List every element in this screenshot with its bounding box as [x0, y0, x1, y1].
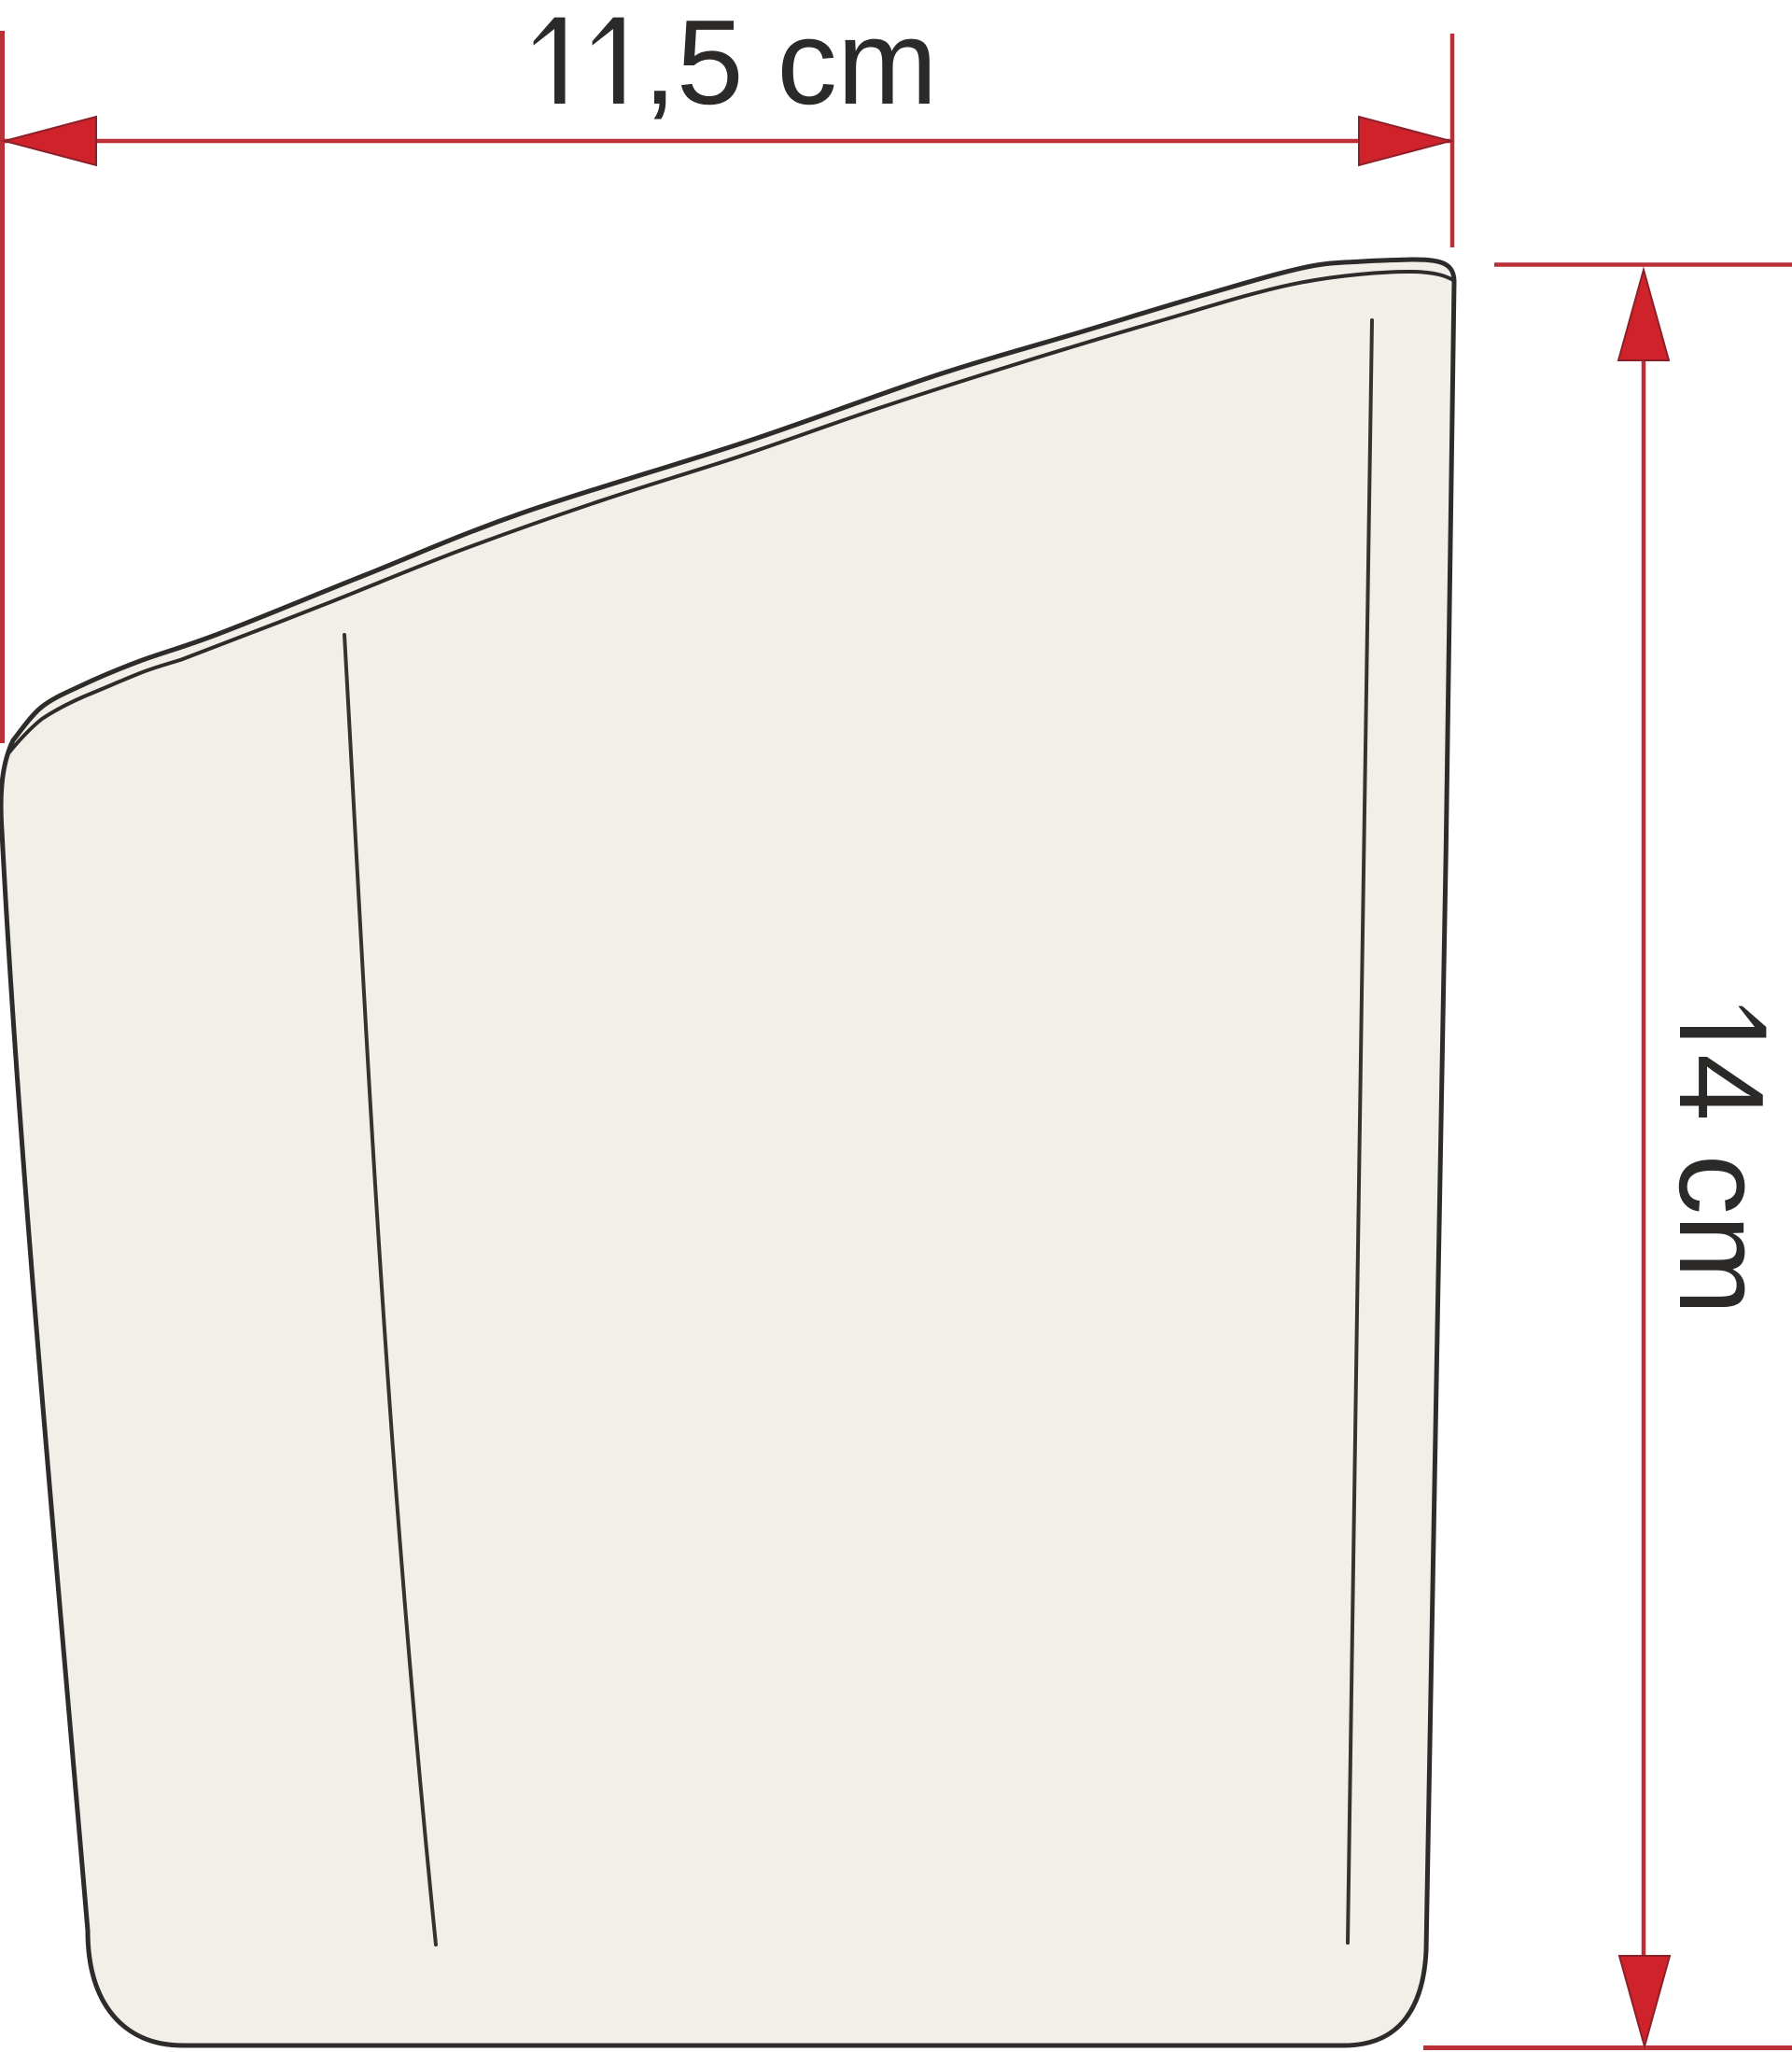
svg-text:4 cm: 4 cm — [1654, 1054, 1788, 1315]
svg-text:,5 cm: ,5 cm — [643, 0, 937, 130]
